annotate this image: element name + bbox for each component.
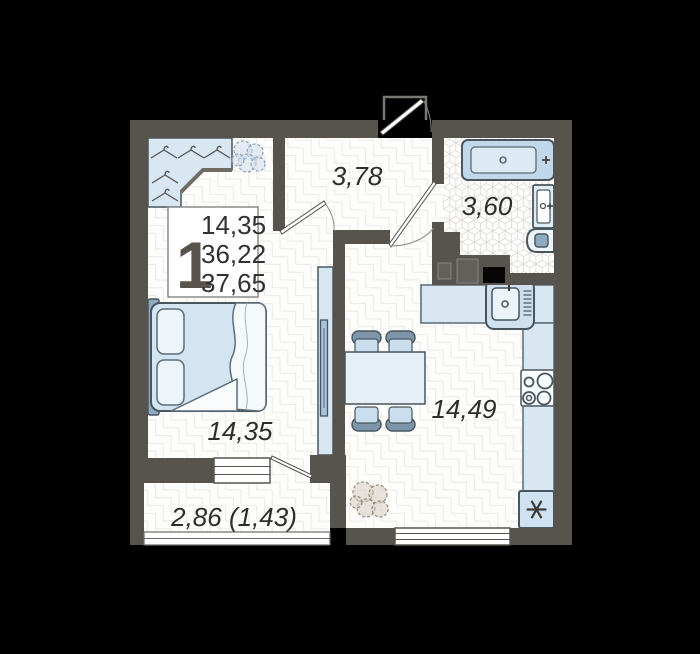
wall-segment <box>130 120 378 138</box>
wall-segment <box>554 120 572 545</box>
wall-segment <box>510 528 554 545</box>
wall-segment <box>432 120 572 138</box>
living-area-value: 14,35 <box>201 210 266 240</box>
wall-segment <box>346 528 395 545</box>
toilet-icon <box>527 229 554 252</box>
pillow <box>157 309 184 354</box>
chair-icon <box>386 407 415 431</box>
snowflake-icon <box>519 491 554 528</box>
chair-icon <box>352 407 381 431</box>
washbasin-icon <box>533 185 554 228</box>
area-value: 36,22 <box>201 239 266 269</box>
pillow <box>157 360 184 405</box>
wall-segment <box>333 230 345 456</box>
wall-segment <box>330 483 346 528</box>
wall-segment <box>144 458 214 483</box>
entrance-door <box>380 97 431 135</box>
table-top <box>345 352 425 404</box>
window-icon <box>214 458 270 483</box>
wall-segment <box>510 273 554 285</box>
door-leaf-icon <box>380 99 424 135</box>
stove-icon <box>521 370 554 406</box>
total-area-value: 37,65 <box>201 268 266 298</box>
wall-segment <box>130 138 148 483</box>
balcony-glazing <box>144 532 330 545</box>
bathroom-area-label: 3,60 <box>462 191 513 221</box>
wall-segment <box>432 222 444 232</box>
bed-icon <box>148 299 266 415</box>
wall-segment <box>345 230 390 244</box>
info-box: 1 14,35 36,22 37,65 <box>168 207 266 302</box>
wall-segment <box>432 138 444 184</box>
floor-plan: 3,78 3,60 14,35 14,49 2,86 (1,43) 1 14,3… <box>0 0 700 654</box>
bathtub-icon <box>462 140 554 180</box>
hallway-area-label: 3,78 <box>332 161 383 191</box>
kitchen-area-label: 14,49 <box>431 394 496 424</box>
window-icon <box>395 528 510 545</box>
bedroom-area-label: 14,35 <box>207 416 273 446</box>
wall-segment <box>310 455 346 483</box>
tv-icon <box>318 267 333 455</box>
vent-shaft-dark <box>483 267 505 283</box>
balcony-area-label: 2,86 (1,43) <box>170 502 297 532</box>
vent-shaft <box>438 263 451 279</box>
wall-segment <box>273 138 285 231</box>
vent-shaft <box>457 259 478 283</box>
wall-segment <box>130 483 144 545</box>
